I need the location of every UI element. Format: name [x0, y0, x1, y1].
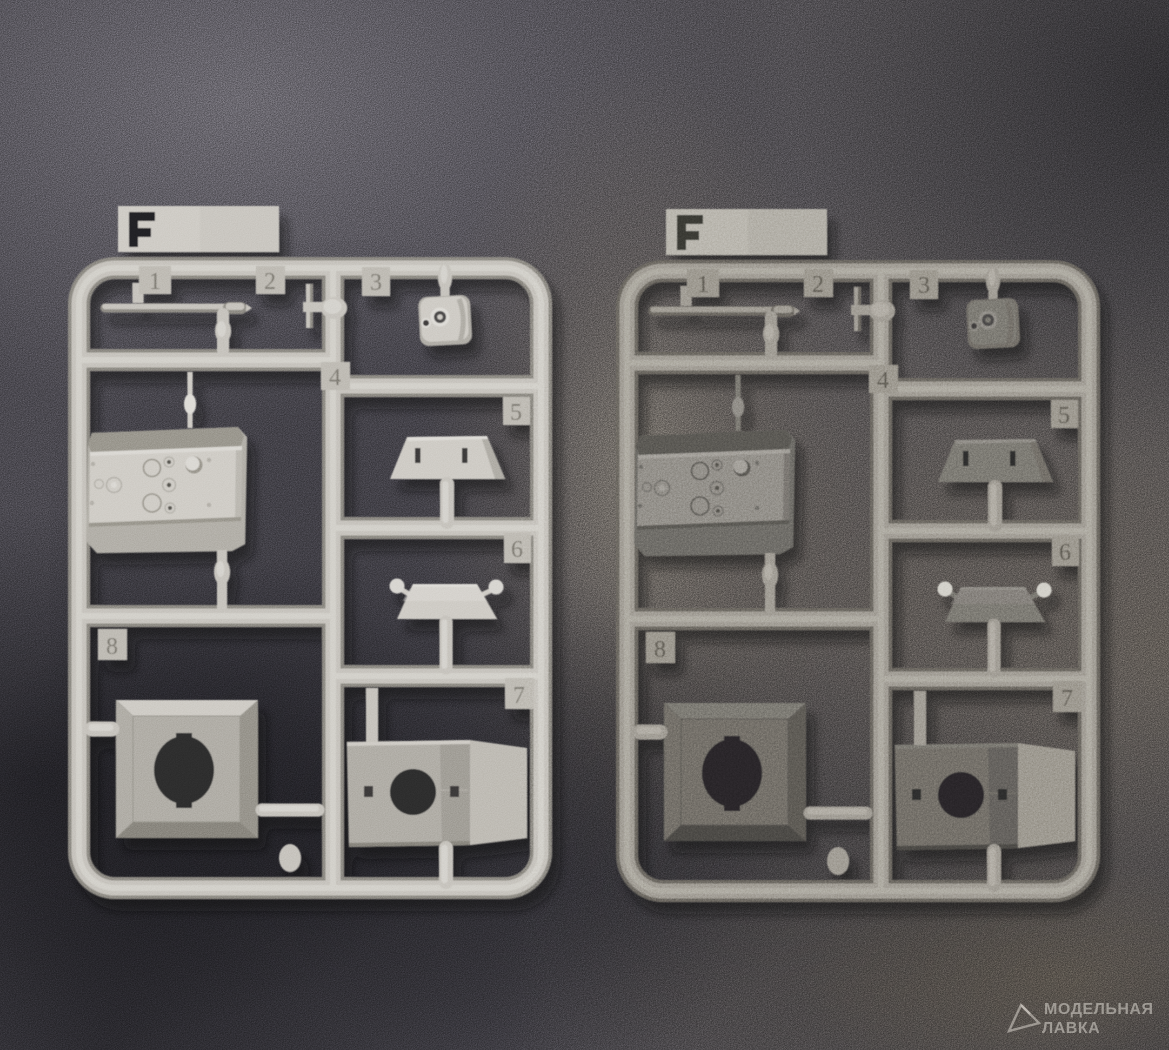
svg-text:ЛАВКА: ЛАВКА [1042, 1020, 1100, 1037]
svg-text:МОДЕЛЬНАЯ: МОДЕЛЬНАЯ [1044, 1001, 1153, 1018]
